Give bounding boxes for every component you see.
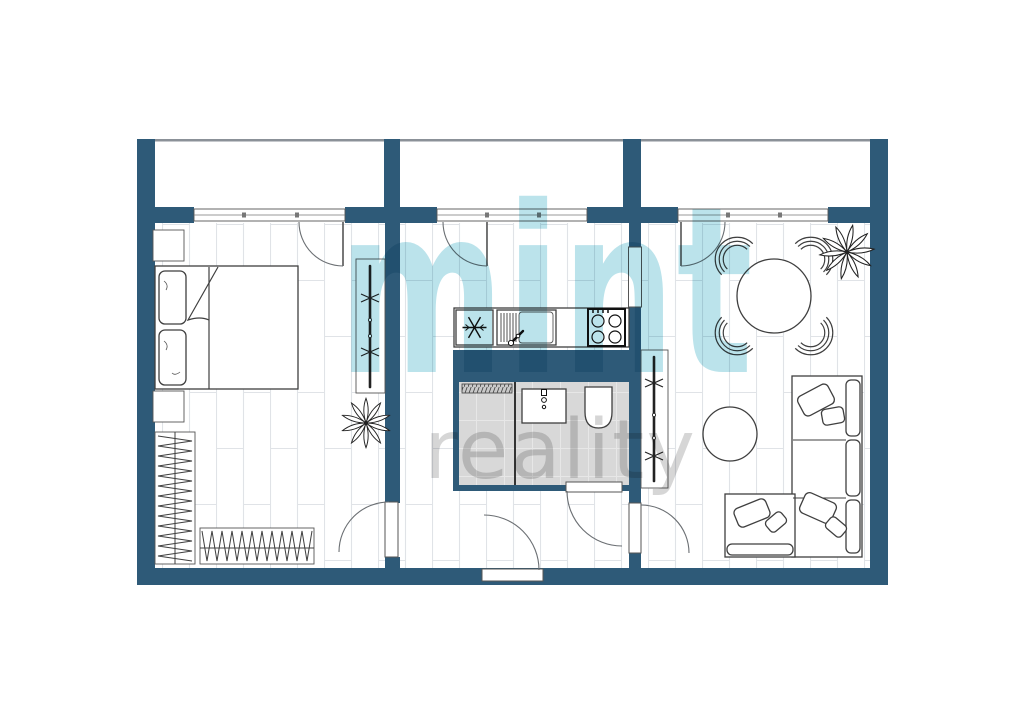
back-cushion [846,500,860,553]
watermark-brand: mint [338,157,754,427]
pillow [159,271,186,324]
watermark-suffix: reality [424,403,697,498]
floor-plan-canvas: mint reality [0,0,1024,724]
double-bed [155,266,298,389]
back-cushion [846,380,860,436]
pillow [159,330,186,385]
open-closet-bottom [200,528,314,564]
wall-left [137,139,155,585]
nightstand [153,230,184,261]
open-closet-left [155,432,195,564]
seat-front [727,544,793,555]
sofa-pillow [821,406,845,426]
bedroom-window [194,209,345,221]
back-cushion [846,440,860,496]
balcony-railing [137,139,888,142]
balconies [137,139,888,142]
wall-right [870,139,888,585]
floor-plan: mint reality [0,0,1024,724]
nightstand [153,391,184,422]
